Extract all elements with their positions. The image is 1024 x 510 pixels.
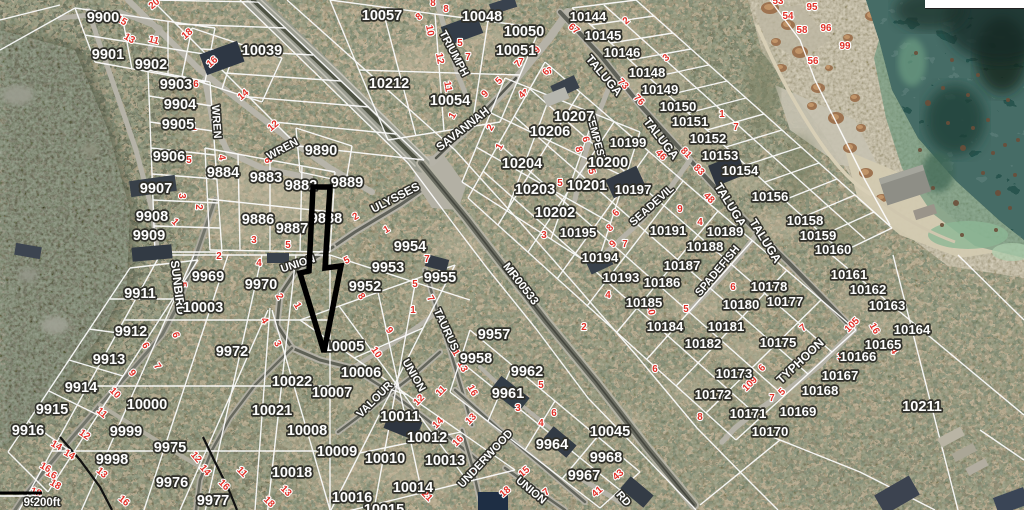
svg-text:10146: 10146 [604, 45, 641, 60]
svg-text:9890: 9890 [305, 143, 337, 159]
svg-text:9972: 9972 [216, 344, 248, 360]
svg-text:7: 7 [465, 52, 471, 63]
svg-text:9908: 9908 [136, 209, 168, 225]
svg-text:9889: 9889 [331, 175, 363, 191]
svg-text:10191: 10191 [650, 223, 687, 238]
svg-text:10185: 10185 [626, 295, 663, 310]
svg-text:9905: 9905 [162, 117, 194, 133]
svg-text:9916: 9916 [12, 423, 44, 439]
svg-text:10211: 10211 [902, 399, 942, 415]
svg-text:10177: 10177 [767, 294, 804, 309]
svg-text:10148: 10148 [629, 65, 666, 80]
svg-text:10145: 10145 [585, 28, 622, 43]
svg-text:9907: 9907 [140, 181, 172, 197]
svg-text:9964: 9964 [536, 437, 569, 453]
svg-text:10013: 10013 [425, 453, 466, 469]
svg-text:4: 4 [605, 290, 611, 301]
svg-text:9884: 9884 [207, 165, 240, 181]
svg-text:9970: 9970 [245, 277, 277, 293]
svg-text:9999: 9999 [110, 424, 142, 440]
svg-text:9904: 9904 [164, 97, 197, 113]
svg-text:95: 95 [807, 2, 818, 13]
svg-text:8: 8 [430, 0, 436, 9]
svg-text:10170: 10170 [752, 424, 789, 439]
svg-text:10189: 10189 [707, 224, 744, 239]
svg-text:9914: 9914 [65, 380, 98, 396]
svg-text:WREN: WREN [209, 105, 223, 139]
svg-text:10207: 10207 [554, 109, 595, 125]
svg-text:7: 7 [622, 239, 628, 250]
svg-text:56: 56 [808, 56, 819, 67]
svg-text:7: 7 [733, 122, 739, 133]
svg-text:10003: 10003 [183, 300, 224, 316]
svg-text:9969: 9969 [192, 269, 224, 285]
svg-text:10011: 10011 [380, 409, 420, 425]
svg-text:10204: 10204 [502, 156, 543, 172]
svg-text:10057: 10057 [362, 8, 403, 24]
svg-text:10010: 10010 [365, 451, 406, 467]
svg-text:7: 7 [424, 254, 430, 265]
svg-text:5: 5 [186, 155, 192, 166]
svg-text:10006: 10006 [341, 365, 382, 381]
svg-text:54: 54 [783, 11, 794, 22]
svg-text:10156: 10156 [752, 189, 789, 204]
svg-text:10008: 10008 [287, 423, 328, 439]
svg-text:10161: 10161 [831, 267, 868, 282]
svg-text:10181: 10181 [708, 319, 745, 334]
svg-text:5: 5 [538, 380, 544, 391]
svg-text:9902: 9902 [135, 57, 167, 73]
svg-text:10153: 10153 [702, 148, 739, 163]
svg-text:9901: 9901 [92, 47, 124, 63]
svg-text:10182: 10182 [685, 336, 722, 351]
svg-text:10022: 10022 [272, 374, 313, 390]
svg-text:9915: 9915 [36, 402, 68, 418]
svg-text:10048: 10048 [462, 9, 503, 25]
svg-text:10005: 10005 [324, 339, 365, 355]
svg-text:9961: 9961 [492, 386, 524, 402]
svg-text:10194: 10194 [582, 250, 619, 265]
svg-text:3: 3 [541, 230, 547, 241]
svg-text:10180: 10180 [723, 297, 760, 312]
svg-text:9968: 9968 [590, 450, 622, 466]
svg-text:9955: 9955 [424, 270, 456, 286]
svg-text:10000: 10000 [127, 397, 168, 413]
svg-text:9906: 9906 [153, 149, 185, 165]
svg-text:10152: 10152 [690, 131, 727, 146]
svg-text:10195: 10195 [560, 225, 597, 240]
svg-text:9911: 9911 [124, 286, 156, 302]
svg-text:4: 4 [256, 258, 262, 269]
svg-text:9909: 9909 [133, 228, 165, 244]
svg-text:3: 3 [515, 403, 521, 414]
svg-text:2: 2 [216, 251, 222, 262]
svg-text:96: 96 [821, 23, 832, 34]
svg-text:9952: 9952 [349, 279, 381, 295]
svg-text:9900: 9900 [87, 10, 119, 26]
svg-text:10171: 10171 [730, 406, 767, 421]
svg-text:9957: 9957 [478, 327, 510, 343]
svg-text:9887: 9887 [276, 221, 308, 237]
svg-text:9976: 9976 [156, 475, 188, 491]
svg-text:10188: 10188 [687, 239, 724, 254]
svg-text:9953: 9953 [372, 260, 404, 276]
svg-text:10203: 10203 [515, 182, 556, 198]
svg-text:4: 4 [697, 217, 703, 228]
svg-text:9977: 9977 [197, 493, 229, 509]
svg-text:10039: 10039 [242, 43, 283, 59]
svg-text:10021: 10021 [252, 403, 293, 419]
svg-text:6: 6 [730, 282, 736, 293]
svg-text:10199: 10199 [610, 135, 647, 150]
svg-text:10154: 10154 [722, 163, 759, 178]
svg-text:200ft: 200ft [34, 497, 61, 509]
svg-text:58: 58 [797, 25, 808, 36]
svg-text:3: 3 [251, 235, 257, 246]
svg-text:9883: 9883 [250, 170, 282, 186]
svg-text:9886: 9886 [242, 212, 274, 228]
svg-text:10160: 10160 [815, 242, 852, 257]
svg-text:10187: 10187 [664, 258, 701, 273]
svg-text:10151: 10151 [672, 114, 709, 129]
svg-text:10149: 10149 [642, 82, 679, 97]
svg-text:4: 4 [538, 418, 544, 429]
svg-text:10144: 10144 [570, 9, 607, 24]
svg-text:9913: 9913 [93, 352, 125, 368]
svg-text:10012: 10012 [407, 430, 448, 446]
svg-text:10186: 10186 [644, 275, 681, 290]
svg-text:10162: 10162 [850, 282, 887, 297]
svg-text:9967: 9967 [568, 468, 600, 484]
svg-text:10200: 10200 [588, 155, 629, 171]
svg-text:1: 1 [410, 305, 416, 316]
svg-text:10193: 10193 [603, 270, 640, 285]
svg-text:10166: 10166 [840, 349, 877, 364]
svg-text:10007: 10007 [312, 385, 353, 401]
svg-text:10159: 10159 [800, 228, 837, 243]
svg-text:10201: 10201 [567, 178, 608, 194]
svg-text:2: 2 [193, 204, 204, 210]
svg-text:10164: 10164 [894, 322, 931, 337]
svg-text:8: 8 [443, 4, 449, 15]
svg-text:10178: 10178 [751, 279, 788, 294]
svg-text:10167: 10167 [822, 368, 859, 383]
svg-text:5: 5 [285, 240, 291, 251]
svg-text:10212: 10212 [369, 76, 410, 92]
svg-text:5: 5 [683, 304, 689, 315]
svg-text:10051: 10051 [496, 43, 537, 59]
svg-text:9975: 9975 [154, 440, 186, 456]
svg-text:10168: 10168 [802, 383, 839, 398]
svg-text:10150: 10150 [660, 99, 697, 114]
svg-text:7: 7 [769, 393, 775, 404]
svg-text:9903: 9903 [160, 77, 192, 93]
svg-text:99: 99 [840, 41, 851, 52]
svg-text:10202: 10202 [535, 205, 576, 221]
svg-text:9912: 9912 [115, 324, 147, 340]
svg-text:10172: 10172 [695, 387, 732, 402]
svg-text:10045: 10045 [590, 424, 631, 440]
svg-text:10050: 10050 [504, 24, 545, 40]
svg-text:10014: 10014 [393, 480, 434, 496]
svg-text:9: 9 [677, 204, 683, 215]
svg-text:53: 53 [773, 0, 784, 7]
svg-text:9954: 9954 [394, 239, 427, 255]
svg-text:9998: 9998 [96, 452, 128, 468]
svg-text:10169: 10169 [780, 404, 817, 419]
svg-text:9958: 9958 [460, 351, 492, 367]
svg-text:2: 2 [581, 322, 587, 333]
svg-text:3: 3 [176, 193, 187, 199]
svg-text:10018: 10018 [272, 465, 313, 481]
svg-text:10015: 10015 [364, 502, 405, 510]
svg-text:8: 8 [697, 412, 703, 423]
svg-text:6: 6 [551, 408, 557, 419]
svg-text:6: 6 [652, 364, 658, 375]
svg-text:10184: 10184 [647, 319, 684, 334]
svg-text:10173: 10173 [716, 366, 753, 381]
svg-text:6: 6 [193, 79, 199, 90]
svg-text:10054: 10054 [430, 93, 471, 109]
svg-text:10175: 10175 [760, 335, 797, 350]
svg-text:10206: 10206 [530, 124, 571, 140]
svg-text:1: 1 [719, 109, 725, 120]
svg-text:5: 5 [412, 279, 418, 290]
svg-text:9962: 9962 [511, 364, 543, 380]
svg-text:10197: 10197 [615, 182, 652, 197]
svg-text:10158: 10158 [787, 213, 824, 228]
svg-text:10163: 10163 [869, 298, 906, 313]
svg-text:5: 5 [557, 178, 563, 189]
svg-text:10009: 10009 [317, 444, 358, 460]
